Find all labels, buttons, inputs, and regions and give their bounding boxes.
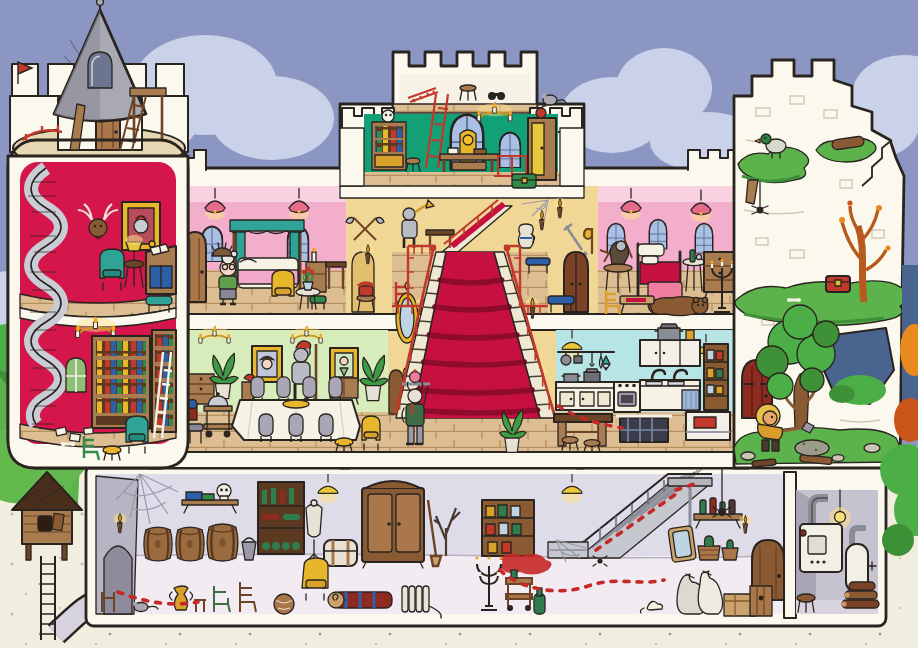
green-bottle	[534, 594, 545, 614]
skull	[382, 110, 394, 122]
pot	[564, 374, 578, 382]
bucket	[242, 542, 256, 560]
basement	[86, 464, 886, 626]
boiler-room	[796, 490, 879, 614]
birdhouse-hole	[38, 516, 52, 531]
large-bookcase	[92, 336, 150, 428]
keep-corner-tower	[340, 128, 364, 186]
meat-chest	[686, 412, 730, 440]
jar	[686, 330, 694, 340]
rolled-rug	[328, 592, 392, 608]
arched-window	[695, 223, 712, 252]
writing-desk	[146, 241, 176, 294]
cake	[410, 372, 421, 383]
illustration	[0, 0, 918, 648]
wardrobe	[362, 481, 424, 568]
bottle-rack	[258, 482, 304, 554]
dead-bug	[597, 558, 602, 563]
bedroom-right-ceiling	[598, 186, 742, 202]
keep-corner-tower	[560, 128, 584, 186]
gothic-window	[500, 132, 521, 167]
leaning-mirror	[668, 525, 696, 562]
barrel	[144, 527, 172, 561]
kitchen-jar-shelf	[704, 344, 728, 410]
granny	[219, 251, 237, 304]
stove	[614, 382, 640, 412]
trunk	[324, 540, 357, 566]
red-treasure-chest	[826, 276, 850, 292]
tower-left	[8, 0, 188, 468]
green-chest	[512, 174, 536, 188]
stock-pot	[658, 328, 680, 340]
tunnel-arch	[104, 546, 132, 614]
gold-platter	[283, 400, 309, 408]
yellow-armchair	[272, 270, 294, 296]
jar-shelf	[482, 500, 534, 556]
red-fruit	[536, 108, 546, 118]
library-window	[66, 358, 86, 392]
dresser	[704, 252, 736, 298]
barrel	[176, 527, 204, 561]
web-basket	[274, 594, 294, 614]
dirt-mound	[795, 440, 829, 456]
trapdoor-dumbwaiter	[616, 416, 672, 442]
pot	[584, 372, 600, 382]
wing-right-merlons	[688, 150, 740, 170]
base-slab	[150, 452, 748, 468]
barrel	[207, 524, 238, 561]
amphora	[174, 586, 188, 610]
jug	[518, 224, 534, 248]
bear-rug	[648, 297, 708, 316]
